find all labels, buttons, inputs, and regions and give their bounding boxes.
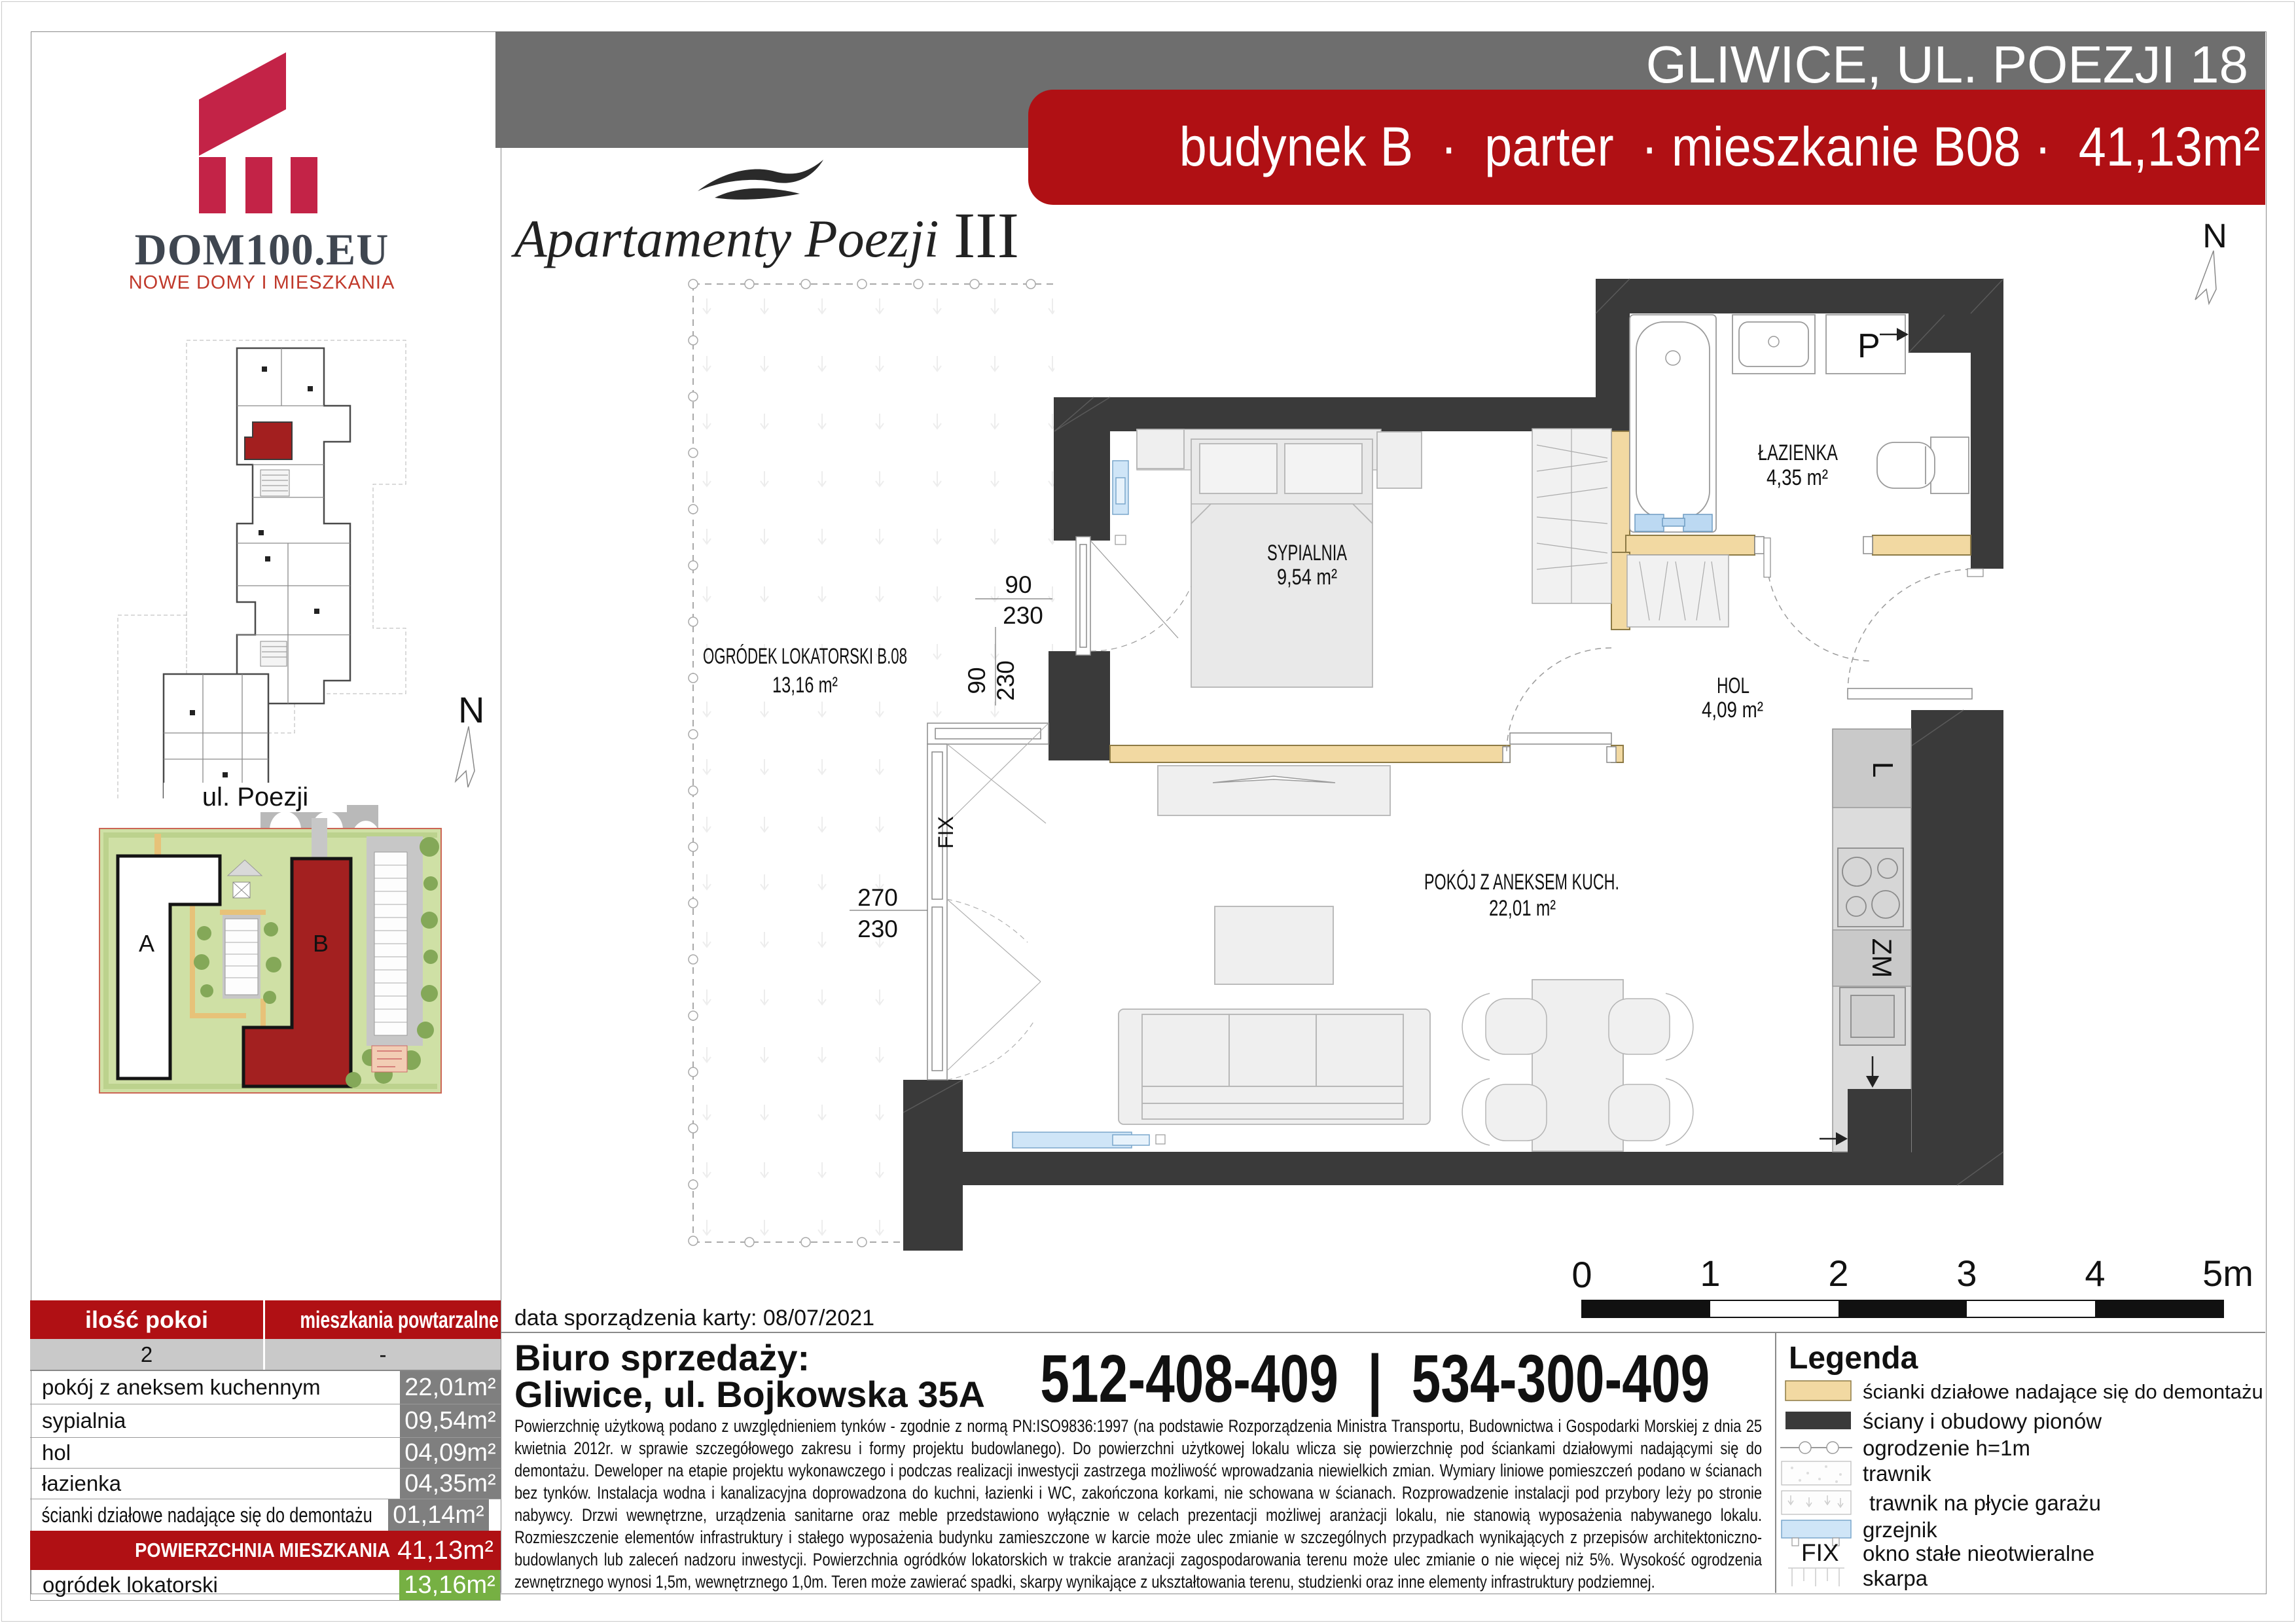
svg-text:3: 3 bbox=[1956, 1253, 1977, 1294]
svg-text:230: 230 bbox=[992, 660, 1019, 701]
svg-text:P: P bbox=[1857, 327, 1880, 365]
svg-text:N: N bbox=[2202, 217, 2227, 255]
svg-text:2: 2 bbox=[1828, 1253, 1848, 1294]
svg-text:FIX: FIX bbox=[1801, 1539, 1839, 1566]
svg-text:9,54 m²: 9,54 m² bbox=[1277, 565, 1337, 590]
svg-text:okno stałe nieotwieralne: okno stałe nieotwieralne bbox=[1863, 1541, 2094, 1565]
svg-text:5m: 5m bbox=[2202, 1253, 2253, 1294]
svg-text:90: 90 bbox=[1005, 571, 1031, 598]
svg-text:4,09 m²: 4,09 m² bbox=[1702, 698, 1763, 722]
svg-text:ŁAZIENKA: ŁAZIENKA bbox=[1758, 440, 1838, 465]
svg-text:4,35 m²: 4,35 m² bbox=[1767, 465, 1828, 490]
svg-text:0: 0 bbox=[1571, 1254, 1592, 1295]
svg-text:HOL: HOL bbox=[1717, 673, 1749, 698]
svg-text:90: 90 bbox=[963, 667, 990, 694]
svg-text:trawnik: trawnik bbox=[1863, 1461, 1931, 1486]
svg-text:13,16 m²: 13,16 m² bbox=[772, 673, 838, 698]
svg-text:230: 230 bbox=[1003, 602, 1043, 629]
svg-text:POKÓJ Z ANEKSEM KUCH.: POKÓJ Z ANEKSEM KUCH. bbox=[1424, 870, 1619, 895]
svg-text:trawnik na płycie garażu: trawnik na płycie garażu bbox=[1869, 1491, 2101, 1515]
svg-text:ścianki działowe nadające się: ścianki działowe nadające się do demonta… bbox=[1863, 1380, 2263, 1403]
svg-text:grzejnik: grzejnik bbox=[1863, 1518, 1937, 1542]
svg-text:ogrodzenie h=1m: ogrodzenie h=1m bbox=[1863, 1436, 2030, 1460]
svg-text:SYPIALNIA: SYPIALNIA bbox=[1267, 541, 1347, 565]
svg-text:270: 270 bbox=[857, 884, 898, 911]
svg-text:22,01 m²: 22,01 m² bbox=[1489, 896, 1556, 921]
svg-text:FIX: FIX bbox=[934, 816, 958, 849]
svg-text:L: L bbox=[1867, 762, 1899, 777]
svg-text:skarpa: skarpa bbox=[1863, 1566, 1928, 1590]
svg-text:ZM: ZM bbox=[1867, 938, 1897, 978]
svg-text:230: 230 bbox=[857, 916, 898, 942]
svg-text:OGRÓDEK LOKATORSKI B.08: OGRÓDEK LOKATORSKI B.08 bbox=[703, 644, 907, 669]
svg-text:4: 4 bbox=[2085, 1253, 2105, 1294]
svg-text:1: 1 bbox=[1700, 1253, 1720, 1294]
svg-text:ściany i obudowy pionów: ściany i obudowy pionów bbox=[1863, 1409, 2102, 1433]
